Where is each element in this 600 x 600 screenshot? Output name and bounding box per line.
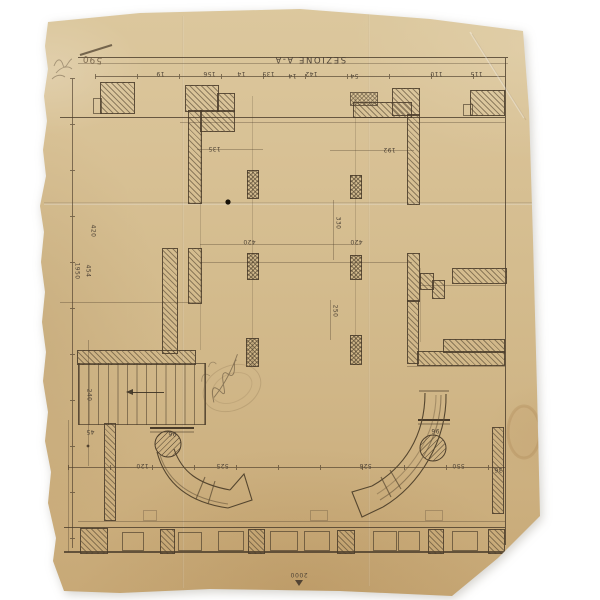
wall-step bbox=[93, 98, 102, 114]
plinth-line bbox=[64, 527, 505, 528]
dimension-label: 420 bbox=[243, 238, 256, 244]
fold-crease-horizontal bbox=[44, 202, 536, 205]
dimension-chain-left bbox=[70, 78, 75, 548]
paper-sheet: SEZIONE A-A 2000 590 1915614135141425411… bbox=[0, 0, 600, 600]
wall-hatch bbox=[417, 351, 505, 366]
wall-pier bbox=[407, 253, 420, 302]
ring-stain bbox=[508, 406, 540, 458]
base-opening bbox=[452, 531, 478, 551]
dimension-label: 525 bbox=[216, 462, 229, 468]
base-detail bbox=[310, 510, 328, 521]
dimension-label: 120 bbox=[136, 462, 149, 468]
dimension-label: 54 bbox=[350, 72, 358, 78]
dimension-label: 420 bbox=[350, 238, 363, 244]
dimension-line bbox=[330, 150, 414, 151]
dimension-label: 330 bbox=[334, 217, 340, 230]
dimension-label: 240 bbox=[85, 389, 91, 402]
base-opening bbox=[122, 532, 144, 551]
base-pier bbox=[337, 530, 355, 554]
column-pier bbox=[350, 335, 362, 365]
pencil-scribble bbox=[52, 59, 72, 79]
wall-hatch bbox=[432, 280, 445, 299]
wall-line bbox=[407, 366, 505, 367]
dimension-label: 525 bbox=[359, 462, 372, 468]
dimension-label: 19 bbox=[156, 70, 164, 76]
base-opening bbox=[218, 531, 244, 551]
dimension-label: 45 bbox=[86, 428, 94, 434]
base-detail bbox=[425, 510, 443, 521]
scale-number: 2000 bbox=[290, 571, 308, 578]
wall-hatch bbox=[200, 110, 235, 132]
scanned-drawing: SEZIONE A-A 2000 590 1915614135141425411… bbox=[0, 0, 600, 600]
wall-hatch bbox=[104, 423, 116, 521]
column-pier bbox=[246, 338, 259, 367]
base-opening bbox=[304, 531, 330, 551]
wall-pier bbox=[407, 114, 420, 205]
dimension-label: 96 bbox=[168, 430, 176, 436]
stair-direction-arrow bbox=[132, 392, 164, 393]
corner-pier bbox=[80, 528, 108, 554]
column-circle bbox=[420, 435, 446, 461]
stair-arrow-head bbox=[126, 389, 133, 395]
wall-hatch bbox=[470, 90, 505, 116]
drawing-title: SEZIONE A-A bbox=[274, 54, 346, 64]
dimension-label: 156 bbox=[203, 70, 216, 76]
column-pier bbox=[247, 170, 259, 199]
dimension-label: 135 bbox=[208, 145, 221, 151]
wall-hatch bbox=[100, 82, 135, 114]
curved-elements-overlay bbox=[0, 0, 600, 600]
wall-hatch bbox=[452, 268, 507, 284]
base-detail bbox=[143, 510, 157, 521]
grid-line bbox=[252, 96, 253, 365]
wall-pier bbox=[162, 248, 178, 354]
dimension-line bbox=[197, 149, 263, 150]
dimension-label: 550 bbox=[452, 462, 465, 468]
dimension-label: 36 bbox=[494, 466, 502, 472]
dimension-line bbox=[200, 262, 412, 263]
dimension-label: 454 bbox=[84, 265, 90, 278]
scale-arrow bbox=[295, 580, 303, 586]
plinth-line bbox=[78, 521, 505, 522]
base-opening bbox=[373, 531, 397, 551]
base-pier bbox=[160, 529, 175, 554]
stair-run bbox=[78, 363, 206, 425]
curved-stair-left bbox=[157, 449, 252, 508]
wall-hatch bbox=[185, 85, 219, 112]
dimension-label: 420 bbox=[89, 225, 95, 238]
dimension-label: 110 bbox=[430, 70, 443, 76]
base-pier bbox=[428, 529, 444, 554]
dimension-label: 14 bbox=[237, 70, 245, 76]
paper-shadow: SEZIONE A-A 2000 590 1915614135141425411… bbox=[0, 0, 600, 600]
base-pier bbox=[488, 529, 505, 554]
dimension-label: 192 bbox=[383, 146, 396, 152]
base-pier bbox=[248, 529, 265, 554]
column-pier bbox=[247, 253, 259, 280]
column-pier bbox=[350, 175, 362, 199]
dimension-label: 96 bbox=[431, 427, 439, 433]
wall-pier bbox=[188, 110, 202, 204]
wall-pier bbox=[188, 248, 202, 304]
dimension-line bbox=[200, 244, 360, 245]
border-line-right bbox=[505, 58, 506, 545]
base-opening bbox=[270, 531, 298, 551]
dimension-label: 250 bbox=[331, 305, 337, 318]
dimension-line bbox=[333, 200, 334, 260]
dimension-label: 135 bbox=[262, 70, 275, 76]
dimension-label: 115 bbox=[470, 70, 483, 76]
base-opening bbox=[398, 531, 420, 551]
ceiling-line bbox=[60, 117, 505, 118]
dimension-label: 14 bbox=[288, 72, 296, 78]
handwritten-number: 590 bbox=[82, 53, 103, 65]
floor-line bbox=[60, 302, 200, 303]
dimension-chain-lower bbox=[68, 465, 505, 470]
wall-hatch bbox=[392, 88, 420, 116]
curved-stair-right bbox=[352, 391, 449, 517]
dimension-line bbox=[88, 340, 89, 466]
wall-step bbox=[463, 104, 473, 116]
grid-line bbox=[355, 96, 356, 365]
column-pier bbox=[350, 255, 362, 280]
border-line-left bbox=[68, 420, 69, 552]
dimension-label: 142 bbox=[305, 70, 318, 76]
dimension-label: 1950 bbox=[73, 263, 79, 280]
base-opening bbox=[178, 532, 202, 551]
